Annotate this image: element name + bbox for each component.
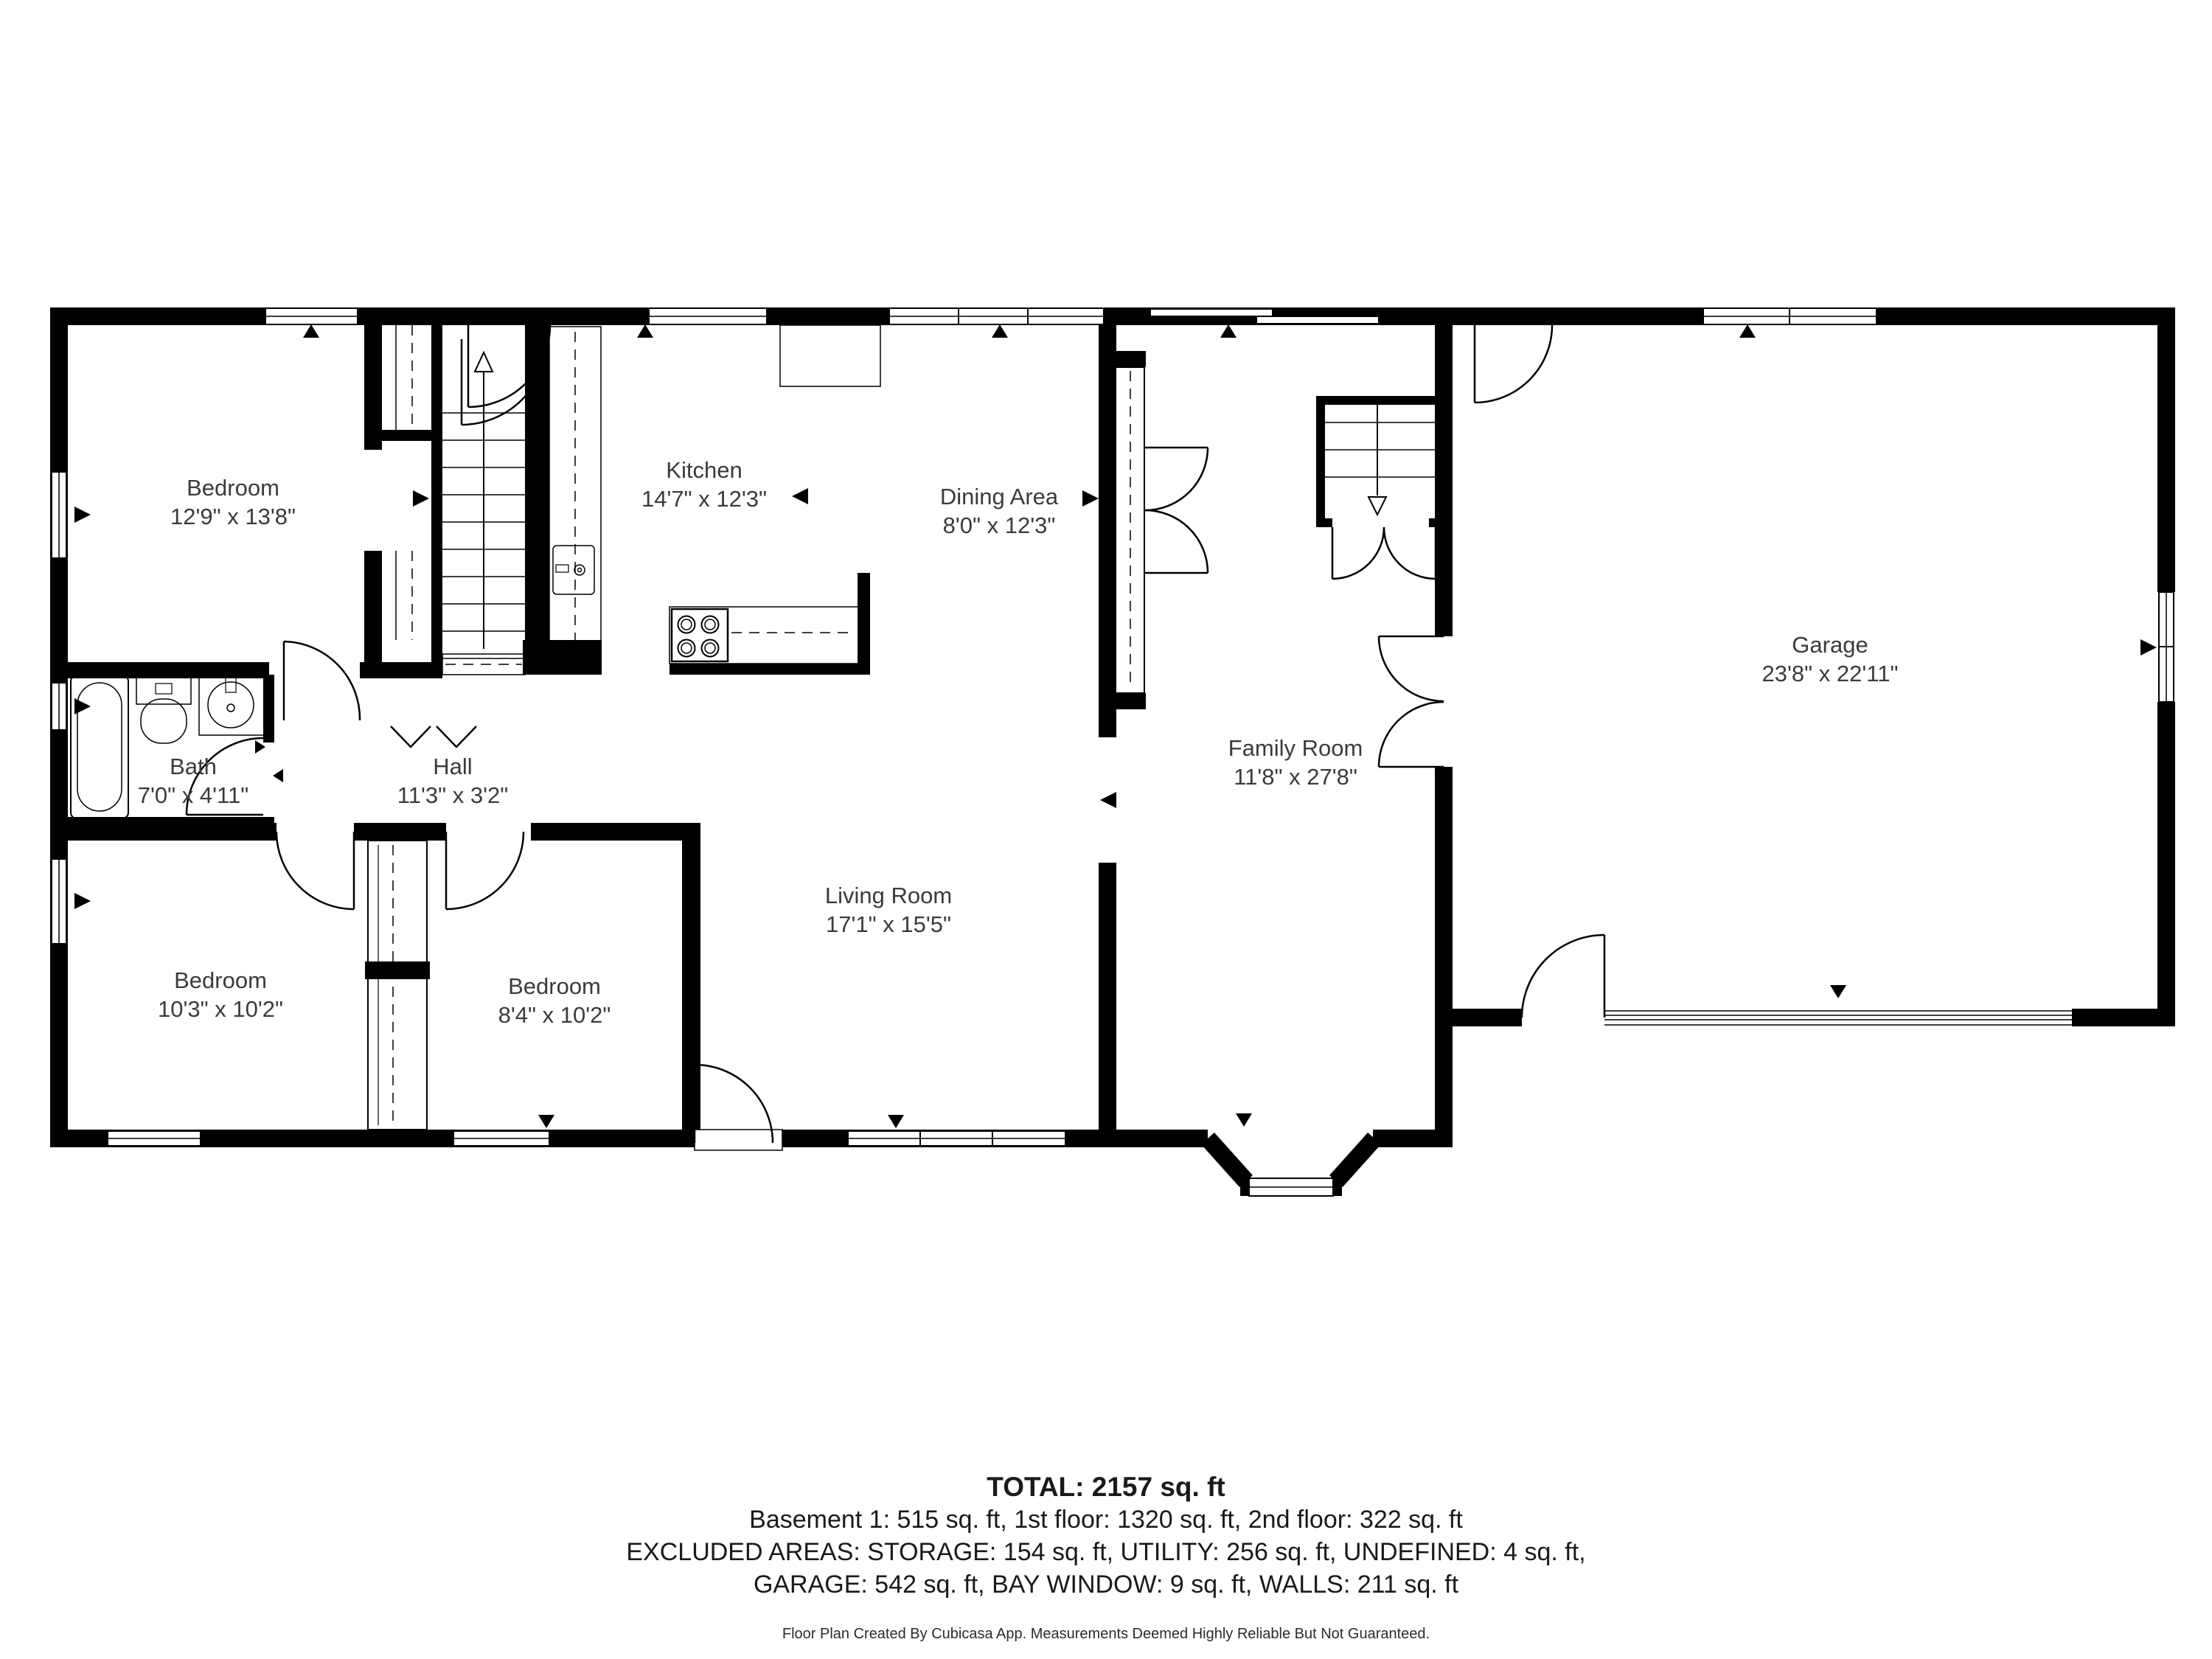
room-label-hall: Hall11'3" x 3'2" [397,752,508,810]
room-name: Living Room [825,881,952,910]
room-label-bedroom-1: Bedroom12'9" x 13'8" [170,473,296,531]
floor-plan-drawing [0,0,2212,1659]
room-label-garage: Garage23'8" x 22'11" [1762,630,1899,688]
room-name: Bedroom [498,972,611,1001]
room-label-bedroom-3: Bedroom8'4" x 10'2" [498,972,611,1029]
room-name: Bedroom [158,966,283,995]
room-label-bath: Bath7'0" x 4'11" [138,752,248,810]
room-dimensions: 11'8" x 27'8" [1228,762,1363,791]
room-label-living-room: Living Room17'1" x 15'5" [825,881,952,939]
room-dimensions: 8'4" x 10'2" [498,1001,611,1029]
room-label-dining-area: Dining Area8'0" x 12'3" [940,482,1058,540]
bathroom-sink-icon [199,675,264,735]
main-staircase [442,352,525,658]
room-label-bedroom-2: Bedroom10'3" x 10'2" [158,966,283,1023]
area-summary: TOTAL: 2157 sq. ft Basement 1: 515 sq. f… [0,1471,2212,1601]
room-label-kitchen: Kitchen14'7" x 12'3" [641,456,767,513]
room-dimensions: 7'0" x 4'11" [138,781,248,810]
basement-staircase [1325,405,1436,515]
room-name: Bath [138,752,248,781]
room-dimensions: 23'8" x 22'11" [1762,659,1899,688]
room-name: Dining Area [940,482,1058,511]
floor-plan-page: Bedroom12'9" x 13'8"Kitchen14'7" x 12'3"… [0,0,2212,1659]
room-name: Hall [397,752,508,781]
room-dimensions: 11'3" x 3'2" [397,781,508,810]
room-name: Kitchen [641,456,767,484]
stove-icon [672,609,728,661]
room-name: Garage [1762,630,1899,659]
excluded-areas-text: EXCLUDED AREAS: STORAGE: 154 sq. ft, UTI… [0,1536,2212,1568]
garage-walls-area-text: GARAGE: 542 sq. ft, BAY WINDOW: 9 sq. ft… [0,1568,2212,1601]
bay-window [1208,1138,1374,1196]
toilet-icon [136,676,191,743]
bathtub-icon [71,675,128,818]
kitchen-sink-icon [553,546,594,594]
room-dimensions: 12'9" x 13'8" [170,502,296,531]
room-dimensions: 17'1" x 15'5" [825,910,952,939]
room-name: Family Room [1228,734,1363,762]
room-name: Bedroom [170,473,296,502]
total-area-text: TOTAL: 2157 sq. ft [0,1471,2212,1503]
room-label-family-room: Family Room11'8" x 27'8" [1228,734,1363,791]
room-dimensions: 10'3" x 10'2" [158,995,283,1023]
room-dimensions: 8'0" x 12'3" [940,511,1058,540]
floors-area-text: Basement 1: 515 sq. ft, 1st floor: 1320 … [0,1503,2212,1536]
room-dimensions: 14'7" x 12'3" [641,484,767,513]
bifold-door-chevrons [391,726,476,747]
disclaimer-text: Floor Plan Created By Cubicasa App. Meas… [0,1626,2212,1643]
